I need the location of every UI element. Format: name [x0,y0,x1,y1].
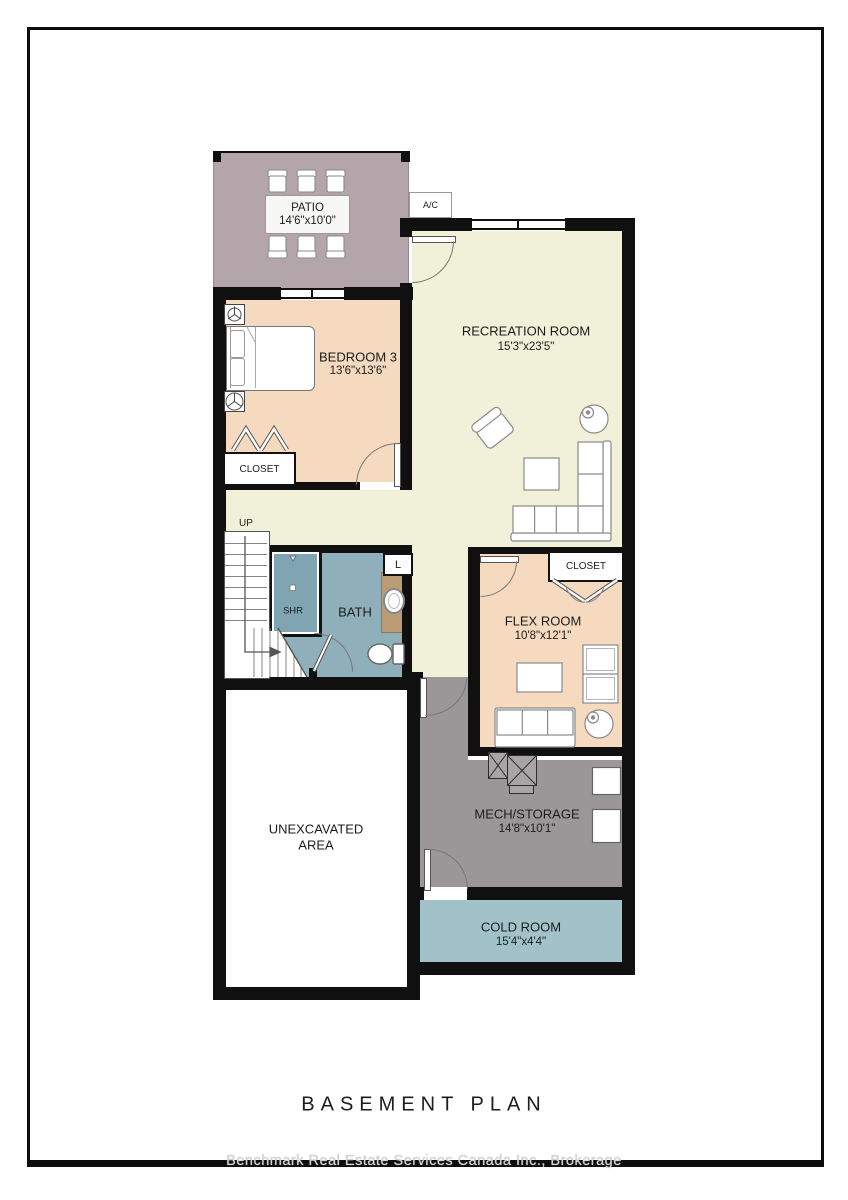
patio-label: PATIO [291,202,324,215]
bath-label: BATH [338,604,372,619]
coffee-table [524,458,559,490]
flex-closet-doors [553,580,617,602]
floor-plan-page: A/C CLOSET CLOSET L [0,0,848,1200]
toilet-icon [368,644,404,664]
recreation-label: RECREATION ROOM [462,323,590,338]
patio-dims: 14'6"x10'0" [279,215,336,228]
unexcavated-label-1: UNEXCAVATED [269,821,364,836]
mech-label: MECH/STORAGE [474,806,579,821]
fan-icon [225,392,245,412]
fixtures-layer [0,0,848,1200]
patio-table: PATIO 14'6"x10'0" [265,195,350,234]
flex-dims: 10'8"x12'1" [515,630,572,644]
fan-icon [225,305,245,325]
sink-icon [384,589,404,613]
bedroom3-dims: 13'6"x13'6" [330,365,387,379]
round-table [580,405,608,433]
cold-label: COLD ROOM [481,919,561,934]
flex-round-table [585,710,613,738]
shower-head-icon [290,556,296,591]
brokerage-watermark: Benchmark Real Estate Services Canada In… [226,1153,622,1169]
furnace-icon [593,768,621,843]
bedroom-closet-doors [233,429,287,450]
laundry-tub-icon [489,753,537,794]
recreation-dims: 15'3"x23'5" [498,341,555,355]
flex-cabinet [583,645,618,703]
stairs-up-label: UP [239,518,253,530]
mech-dims: 14'8"x10'1" [499,823,556,837]
flex-sofa [495,708,575,747]
stair-break-line [278,628,307,677]
unexcavated-label-2: AREA [298,837,333,852]
plan-title: BASEMENT PLAN [301,1094,546,1117]
flex-coffee-table [517,663,562,692]
bedroom3-label: BEDROOM 3 [319,349,397,364]
flex-label: FLEX ROOM [505,613,582,628]
bed-fold [247,327,255,342]
sectional-sofa [511,441,611,541]
shower-label: SHR [283,605,303,616]
armchair [470,406,515,451]
cold-dims: 15'4"x4'4" [496,936,546,950]
bath-door-leaf [314,635,331,671]
